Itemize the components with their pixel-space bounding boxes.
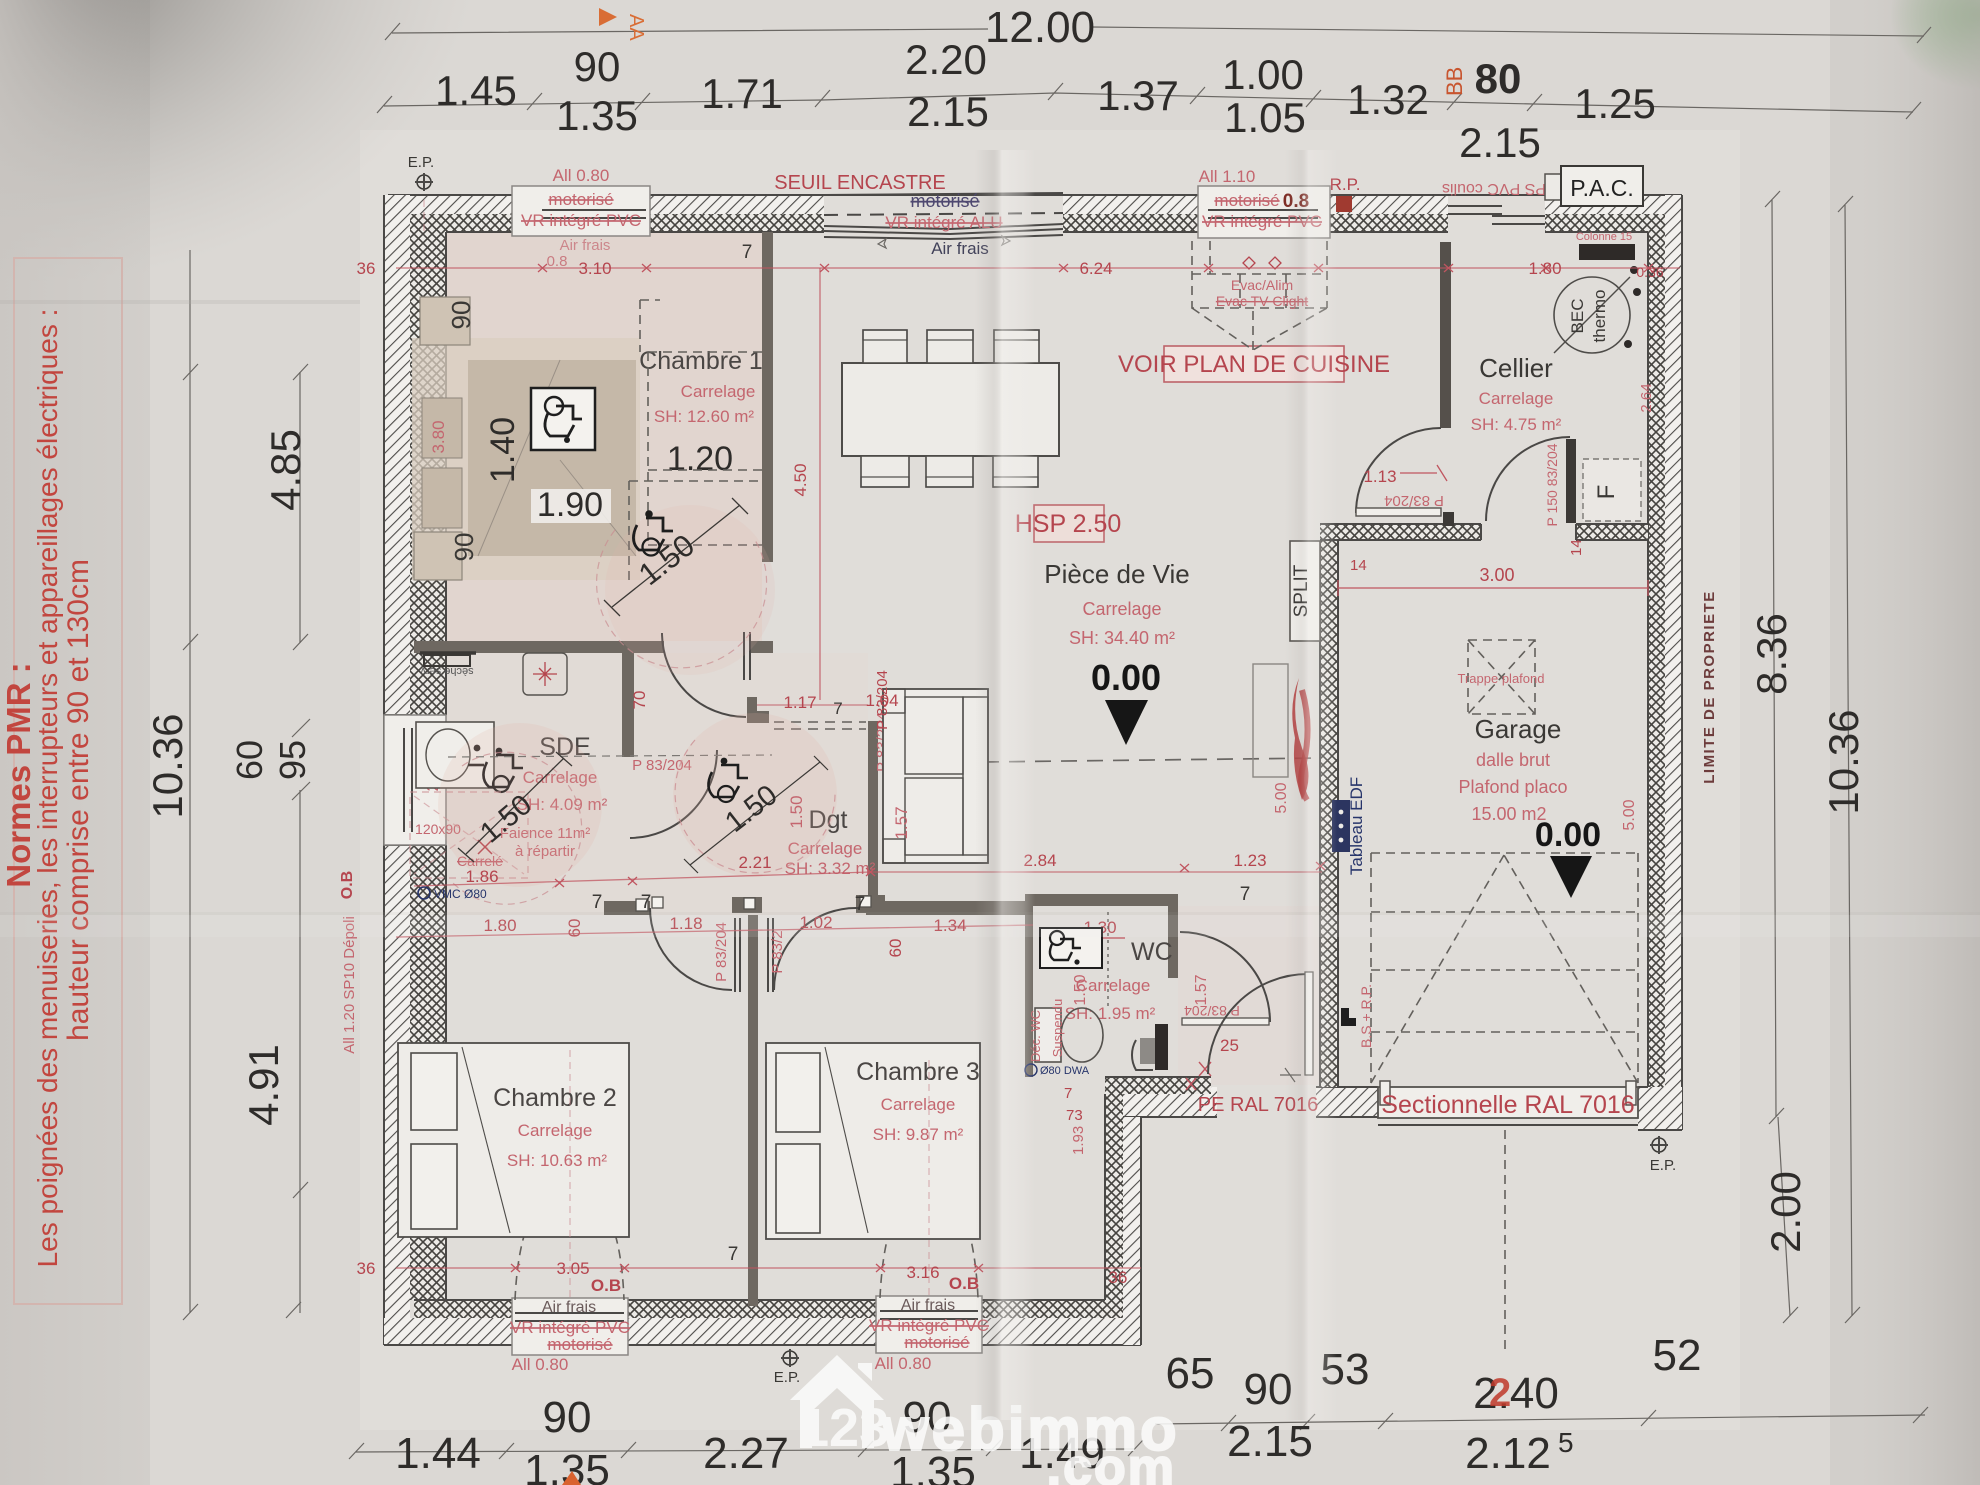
svg-text:VMC Ø80: VMC Ø80 — [434, 887, 487, 901]
svg-text:Carrelage: Carrelage — [1479, 389, 1554, 408]
svg-text:E.P.: E.P. — [774, 1369, 800, 1386]
svg-text:2: 2 — [1489, 1371, 1511, 1415]
svg-text:1.57: 1.57 — [892, 806, 911, 839]
svg-text:All 0.80: All 0.80 — [875, 1354, 932, 1373]
svg-text:1.44: 1.44 — [395, 1429, 481, 1478]
svg-text:4.91: 4.91 — [240, 1044, 287, 1126]
svg-text:F: F — [1593, 485, 1620, 500]
svg-text:7: 7 — [1064, 1085, 1072, 1102]
svg-text:4.85: 4.85 — [262, 429, 309, 511]
svg-text:1.80: 1.80 — [1528, 259, 1561, 278]
svg-text:O.B: O.B — [339, 871, 356, 899]
svg-text:14: 14 — [1350, 557, 1367, 574]
svg-text:60: 60 — [229, 740, 270, 780]
svg-text:VR intégré PVC: VR intégré PVC — [521, 211, 641, 230]
svg-text:SH: 12.60 m²: SH: 12.60 m² — [654, 407, 754, 426]
svg-text:90: 90 — [574, 43, 621, 90]
svg-text:1.13: 1.13 — [1363, 467, 1396, 486]
svg-text:0.00: 0.00 — [1091, 657, 1161, 698]
svg-text:Trappe plafond: Trappe plafond — [1458, 671, 1545, 686]
svg-text:2.40: 2.40 — [1473, 1369, 1559, 1418]
svg-text:1.35: 1.35 — [556, 92, 638, 139]
svg-text:VOIR PLAN DE CUISINE: VOIR PLAN DE CUISINE — [1118, 351, 1390, 378]
svg-text:sèche serv: sèche serv — [420, 665, 474, 677]
svg-text:Suspendu: Suspendu — [1050, 999, 1065, 1058]
svg-text:P.A.C.: P.A.C. — [1570, 175, 1634, 201]
svg-text:E.P.: E.P. — [408, 154, 434, 171]
svg-text:WC: WC — [1131, 938, 1173, 966]
svg-text:7: 7 — [592, 892, 603, 913]
svg-text:5: 5 — [1558, 1427, 1574, 1458]
svg-text:Pièce de Vie: Pièce de Vie — [1044, 559, 1190, 589]
svg-text:1.00: 1.00 — [1222, 51, 1304, 98]
svg-text:10.36: 10.36 — [144, 713, 191, 818]
svg-text:Evac/Alim: Evac/Alim — [1231, 277, 1293, 293]
svg-text:1.90: 1.90 — [537, 486, 603, 524]
svg-text:36: 36 — [357, 1259, 376, 1278]
svg-text:6.24: 6.24 — [1079, 259, 1112, 278]
svg-text:3.00: 3.00 — [1479, 565, 1514, 585]
svg-text:Chambre 2: Chambre 2 — [493, 1084, 617, 1112]
svg-text:2.00: 2.00 — [1762, 1171, 1809, 1253]
svg-text:AA: AA — [625, 14, 647, 41]
svg-text:1.93: 1.93 — [1070, 1126, 1087, 1155]
svg-text:Ø80 DWA: Ø80 DWA — [1040, 1065, 1090, 1077]
svg-text:73: 73 — [1066, 1107, 1083, 1124]
svg-text:Plafond placo: Plafond placo — [1458, 777, 1567, 797]
svg-text:3.80: 3.80 — [429, 420, 448, 453]
svg-text:motorisé: motorisé — [1214, 191, 1279, 210]
svg-text:motorisé: motorisé — [904, 1333, 969, 1352]
svg-text:Chambre 3: Chambre 3 — [856, 1058, 980, 1086]
svg-text:Air frais: Air frais — [542, 1299, 596, 1316]
svg-text:P 83/204: P 83/204 — [1384, 492, 1444, 509]
svg-text:2.15: 2.15 — [907, 88, 989, 135]
svg-text:All 0.80: All 0.80 — [553, 166, 610, 185]
svg-text:motorisé: motorisé — [547, 1335, 612, 1354]
svg-text:90: 90 — [449, 533, 479, 562]
svg-text:hauteur comprise entre 90 et 1: hauteur comprise entre 90 et 130cm — [62, 559, 95, 1041]
svg-text:1.50: 1.50 — [787, 795, 806, 828]
svg-text:3.10: 3.10 — [578, 259, 611, 278]
svg-text:1.37: 1.37 — [1097, 72, 1179, 119]
svg-text:O.B: O.B — [949, 1274, 979, 1293]
svg-text:1.57: 1.57 — [1193, 974, 1210, 1005]
svg-text:P 150 83/204: P 150 83/204 — [1544, 443, 1560, 526]
svg-text:SH: 1.95 m²: SH: 1.95 m² — [1065, 1004, 1156, 1023]
svg-text:7: 7 — [728, 1244, 739, 1265]
svg-text:Garage: Garage — [1475, 714, 1562, 744]
svg-text:36: 36 — [1109, 1268, 1128, 1287]
svg-text:12.00: 12.00 — [985, 3, 1095, 52]
svg-text:SH: 4.75 m²: SH: 4.75 m² — [1471, 415, 1562, 434]
svg-text:Carrelage: Carrelage — [518, 1121, 593, 1140]
svg-text:0.00: 0.00 — [1535, 816, 1601, 854]
svg-text:36: 36 — [357, 259, 376, 278]
svg-text:BEC: BEC — [1568, 299, 1587, 334]
svg-text:80: 80 — [1475, 55, 1522, 102]
svg-text:1.50: 1.50 — [1072, 974, 1089, 1005]
svg-text:SH: 34.40 m²: SH: 34.40 m² — [1069, 628, 1175, 648]
svg-text:4.50: 4.50 — [791, 463, 810, 496]
svg-text:.com: .com — [1047, 1439, 1176, 1485]
svg-text:1.86: 1.86 — [465, 867, 498, 886]
svg-text:3.16: 3.16 — [906, 1263, 939, 1282]
svg-text:motorisé: motorisé — [548, 190, 613, 209]
svg-text:1.32: 1.32 — [1347, 76, 1429, 123]
svg-text:Air frais: Air frais — [560, 237, 611, 254]
svg-text:52: 52 — [1653, 1331, 1702, 1380]
svg-text:thermo: thermo — [1590, 290, 1609, 343]
svg-text:BB: BB — [1442, 67, 1467, 96]
svg-text:Carrelage: Carrelage — [1082, 599, 1161, 619]
svg-text:5.00: 5.00 — [1621, 799, 1638, 830]
svg-text:123: 123 — [799, 1398, 889, 1458]
svg-text:Cellier: Cellier — [1479, 353, 1553, 383]
svg-text:7: 7 — [855, 894, 866, 915]
svg-text:2.21: 2.21 — [738, 853, 771, 872]
svg-text:LIMITE DE PROPRIETE: LIMITE DE PROPRIETE — [1701, 590, 1718, 784]
svg-text:1.45: 1.45 — [435, 67, 517, 114]
svg-text:E.P.: E.P. — [1650, 1157, 1676, 1174]
svg-text:O.B: O.B — [591, 1276, 621, 1295]
svg-text:1.40: 1.40 — [484, 417, 522, 483]
svg-text:Carrelage: Carrelage — [881, 1095, 956, 1114]
svg-text:90: 90 — [446, 301, 476, 330]
svg-text:14: 14 — [1568, 539, 1585, 556]
svg-text:P 83/204: P 83/204 — [874, 670, 891, 730]
svg-text:7: 7 — [833, 699, 842, 718]
svg-text:60: 60 — [886, 939, 905, 958]
svg-text:2.15: 2.15 — [1227, 1417, 1313, 1466]
svg-text:1.05: 1.05 — [1224, 94, 1306, 141]
svg-text:1.20: 1.20 — [667, 440, 733, 478]
svg-text:dalle brut: dalle brut — [1476, 750, 1550, 770]
svg-text:Sectionnelle RAL 7016: Sectionnelle RAL 7016 — [1381, 1091, 1634, 1119]
svg-text:B.S + R.P.: B.S + R.P. — [1358, 984, 1374, 1048]
svg-text:All 0.80: All 0.80 — [512, 1355, 569, 1374]
svg-text:1.71: 1.71 — [701, 70, 783, 117]
svg-text:2.20: 2.20 — [905, 36, 987, 83]
svg-text:PS PVC coulis: PS PVC coulis — [1442, 180, 1546, 197]
svg-text:SH: 10.63 m²: SH: 10.63 m² — [507, 1151, 607, 1170]
svg-text:1.17: 1.17 — [783, 693, 816, 712]
svg-text:2.15: 2.15 — [1459, 119, 1541, 166]
svg-text:7: 7 — [742, 242, 753, 263]
svg-text:25: 25 — [1220, 1036, 1239, 1055]
svg-text:70: 70 — [630, 691, 649, 710]
svg-text:Air frais: Air frais — [901, 1297, 955, 1314]
svg-text:3.05: 3.05 — [556, 1259, 589, 1278]
svg-text:All 1.10: All 1.10 — [1199, 167, 1256, 186]
svg-text:2.12: 2.12 — [1465, 1429, 1551, 1478]
svg-text:8.36: 8.36 — [1748, 613, 1795, 695]
svg-text:0.36: 0.36 — [1636, 264, 1663, 280]
svg-text:SH: 9.87 m²: SH: 9.87 m² — [873, 1125, 964, 1144]
svg-text:Colonne 15: Colonne 15 — [1576, 231, 1632, 243]
svg-text:Tableau EDF: Tableau EDF — [1347, 777, 1366, 875]
svg-text:95: 95 — [272, 740, 313, 780]
svg-text:Les poignées des menuiseries,: Les poignées des menuiseries, les interr… — [32, 309, 63, 1268]
svg-text:Carrelage: Carrelage — [681, 382, 756, 401]
svg-text:7: 7 — [1240, 884, 1251, 905]
svg-text:10.36: 10.36 — [1820, 709, 1867, 814]
svg-text:2.64: 2.64 — [1638, 383, 1655, 412]
svg-text:motorisé: motorisé — [910, 191, 979, 211]
svg-text:90: 90 — [543, 1393, 592, 1442]
svg-text:2.27: 2.27 — [703, 1429, 789, 1478]
svg-text:65: 65 — [1166, 1349, 1215, 1398]
svg-text:1.25: 1.25 — [1574, 80, 1656, 127]
svg-text:7: 7 — [641, 892, 652, 913]
svg-text:1.23: 1.23 — [1233, 851, 1266, 870]
